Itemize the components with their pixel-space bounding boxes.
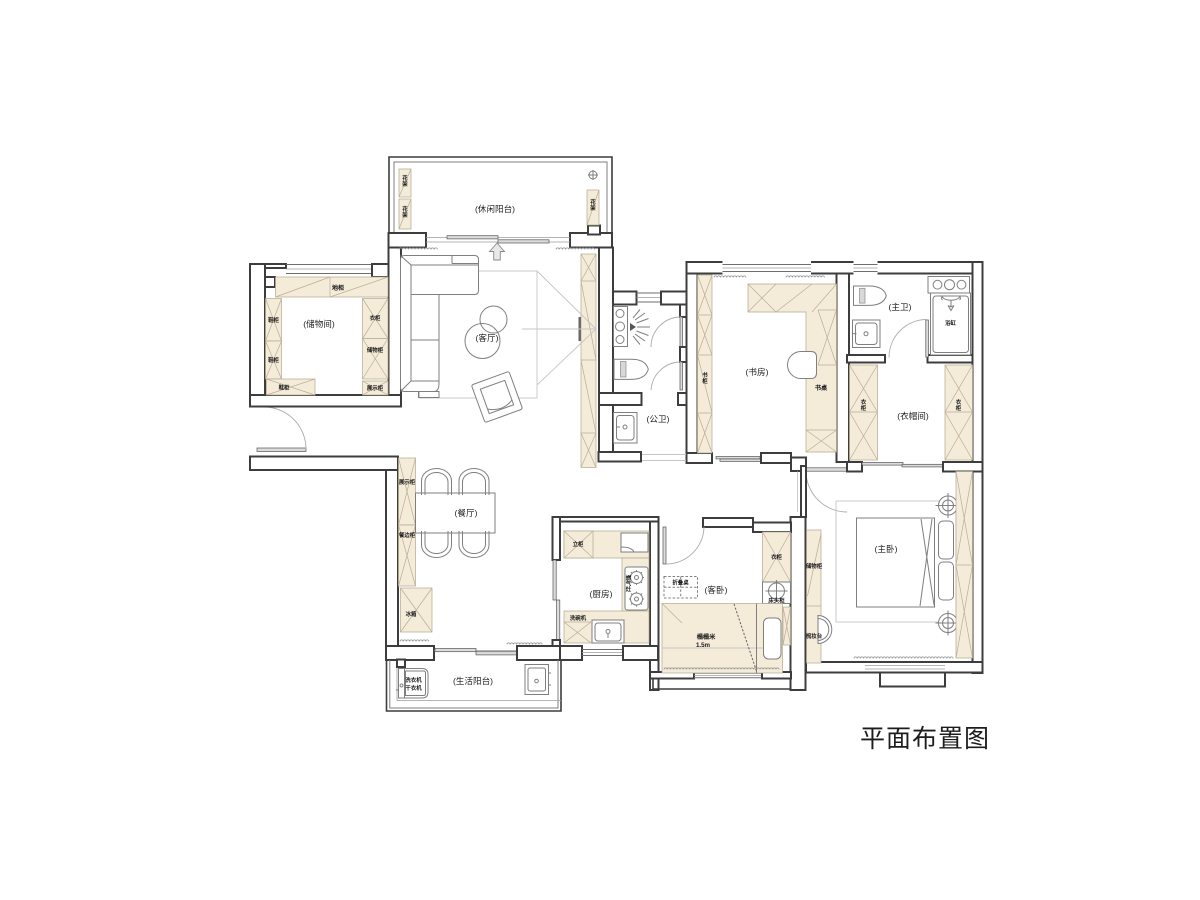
svg-text:(公卫): (公卫) bbox=[647, 414, 670, 424]
svg-text:衣柜: 衣柜 bbox=[860, 398, 867, 412]
svg-text:花架: 花架 bbox=[589, 198, 596, 212]
svg-text:衣柜: 衣柜 bbox=[955, 398, 962, 412]
svg-text:书桌: 书桌 bbox=[815, 384, 828, 392]
svg-text:花架: 花架 bbox=[401, 174, 408, 188]
svg-text:地柜: 地柜 bbox=[332, 284, 345, 292]
svg-text:展示柜: 展示柜 bbox=[399, 478, 416, 486]
svg-text:衣柜: 衣柜 bbox=[771, 553, 782, 561]
svg-text:(储物间): (储物间) bbox=[303, 318, 335, 329]
svg-text:燃气灶: 燃气灶 bbox=[625, 574, 632, 593]
svg-text:鞋柜: 鞋柜 bbox=[268, 356, 279, 364]
svg-text:花架: 花架 bbox=[401, 205, 408, 219]
svg-text:(衣帽间): (衣帽间) bbox=[897, 410, 929, 421]
svg-text:(生活阳台): (生活阳台) bbox=[453, 675, 493, 686]
svg-text:榻榻米: 榻榻米 bbox=[697, 633, 716, 641]
svg-text:折叠桌: 折叠桌 bbox=[672, 579, 689, 587]
svg-text:立柜: 立柜 bbox=[573, 540, 584, 548]
svg-text:平面布置图: 平面布置图 bbox=[860, 725, 990, 753]
svg-text:餐边柜: 餐边柜 bbox=[399, 531, 416, 539]
svg-text:洗衣机: 洗衣机 bbox=[405, 676, 422, 684]
svg-text:(客卧): (客卧) bbox=[705, 584, 728, 595]
svg-text:书柜: 书柜 bbox=[701, 371, 708, 385]
svg-text:(客厅): (客厅) bbox=[476, 332, 499, 343]
svg-text:储物柜: 储物柜 bbox=[366, 346, 384, 354]
svg-text:(书房): (书房) bbox=[746, 366, 769, 377]
svg-text:鞋柜: 鞋柜 bbox=[279, 384, 290, 392]
svg-text:(厨房): (厨房) bbox=[590, 588, 613, 599]
svg-text:梳妆台: 梳妆台 bbox=[805, 632, 823, 640]
svg-text:储物柜: 储物柜 bbox=[805, 562, 823, 570]
svg-text:(餐厅): (餐厅) bbox=[455, 508, 478, 518]
svg-text:冰箱: 冰箱 bbox=[406, 610, 417, 618]
svg-text:浴缸: 浴缸 bbox=[945, 319, 956, 327]
svg-text:鞋柜: 鞋柜 bbox=[268, 316, 279, 324]
svg-text:衣柜: 衣柜 bbox=[370, 314, 381, 322]
svg-text:(主卧): (主卧) bbox=[875, 543, 898, 554]
svg-text:展示柜: 展示柜 bbox=[367, 384, 384, 392]
svg-text:洗碗机: 洗碗机 bbox=[570, 614, 587, 622]
svg-text:1.5m: 1.5m bbox=[696, 642, 711, 649]
svg-text:(休闲阳台): (休闲阳台) bbox=[475, 203, 515, 214]
svg-text:(主卫): (主卫) bbox=[889, 301, 912, 312]
svg-text:干衣机: 干衣机 bbox=[405, 684, 422, 692]
